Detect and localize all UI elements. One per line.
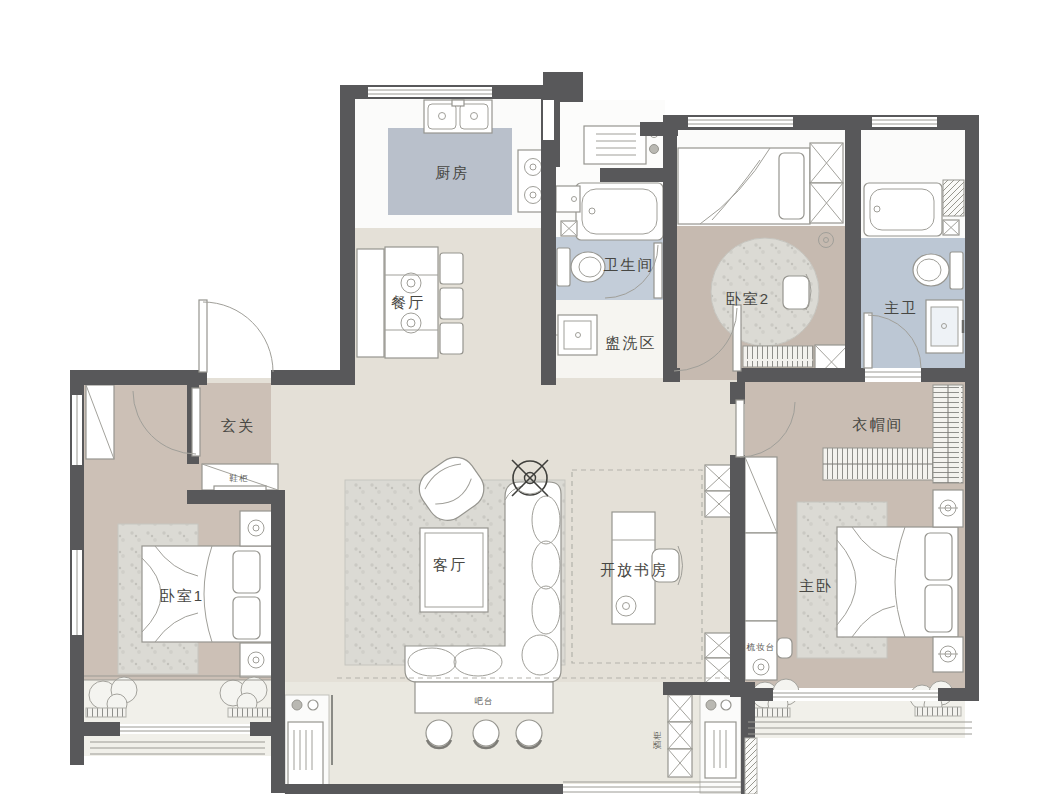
label-master-bedroom: 主卧 bbox=[799, 577, 833, 594]
bathtub bbox=[576, 183, 663, 240]
master-bath-cabinet bbox=[943, 180, 964, 216]
label-dining: 餐厅 bbox=[391, 294, 425, 311]
label-bedroom1: 卧室1 bbox=[160, 587, 204, 604]
label-dressing-table: 梳妆台 bbox=[746, 642, 776, 652]
bedroom2-window bbox=[688, 117, 793, 127]
label-bar: 吧台 bbox=[475, 696, 494, 706]
floor-plan: 厨房 餐厅 卫生间 盥洗区 卧室2 主卫 玄关 衣帽间 卧室1 客厅 开放书房 … bbox=[0, 0, 1060, 794]
bedroom1-wardrobe bbox=[86, 385, 114, 459]
bedroom1-nightstand-bottom bbox=[240, 643, 272, 677]
master-bathtub bbox=[864, 183, 942, 236]
label-bedroom2: 卧室2 bbox=[726, 290, 770, 307]
kitchen-sink bbox=[424, 100, 492, 133]
label-living: 客厅 bbox=[433, 556, 467, 573]
kitchen-side-window bbox=[543, 100, 554, 140]
label-cloakroom: 衣帽间 bbox=[852, 416, 904, 433]
label-kitchen: 厨房 bbox=[435, 164, 469, 181]
master-sink bbox=[926, 300, 963, 353]
label-shoe-cabinet: 鞋柜 bbox=[229, 473, 249, 483]
laundry-rack bbox=[584, 126, 646, 164]
label-wash-area: 盥洗区 bbox=[606, 334, 657, 351]
dining-bench bbox=[357, 249, 384, 357]
bedroom1-nightstand-top bbox=[240, 511, 272, 546]
label-bathroom: 卫生间 bbox=[604, 256, 655, 273]
study-shelf-bottom bbox=[705, 633, 733, 683]
bedroom2-bed bbox=[678, 148, 810, 224]
label-master-bath: 主卫 bbox=[884, 299, 918, 316]
master-nightstand-top bbox=[933, 490, 963, 527]
floor-plan-page: 厨房 餐厅 卫生间 盥洗区 卧室2 主卫 玄关 衣帽间 卧室1 客厅 开放书房 … bbox=[0, 0, 1060, 794]
master-toilet bbox=[913, 252, 963, 289]
wine-cabinet bbox=[668, 695, 692, 777]
kitchen-window bbox=[368, 87, 492, 97]
dining-chairs bbox=[440, 253, 463, 354]
bedroom2-wardrobe bbox=[810, 143, 843, 223]
label-wine-cabinet: 酒柜 bbox=[652, 731, 662, 750]
master-bed bbox=[837, 527, 958, 637]
utility-closet-right bbox=[700, 695, 741, 793]
label-entry: 玄关 bbox=[221, 417, 255, 434]
utility-closet-left bbox=[285, 695, 332, 793]
label-study: 开放书房 bbox=[600, 561, 668, 578]
entry-door bbox=[199, 300, 273, 372]
bedroom2-pillow bbox=[779, 153, 804, 219]
master-wardrobe bbox=[745, 457, 777, 533]
bedroom2-radiator bbox=[743, 346, 813, 367]
master-bath-window bbox=[872, 117, 937, 127]
master-bath-door-threshold bbox=[865, 372, 921, 377]
living-furniture bbox=[405, 449, 561, 682]
master-nightstand-bottom bbox=[933, 637, 963, 672]
wash-area-fixtures bbox=[552, 315, 597, 355]
study-shelf-top bbox=[705, 465, 733, 517]
balcony-hatch-strip bbox=[745, 738, 757, 794]
bedroom2-chair bbox=[783, 274, 811, 310]
bar-stools bbox=[426, 720, 542, 748]
